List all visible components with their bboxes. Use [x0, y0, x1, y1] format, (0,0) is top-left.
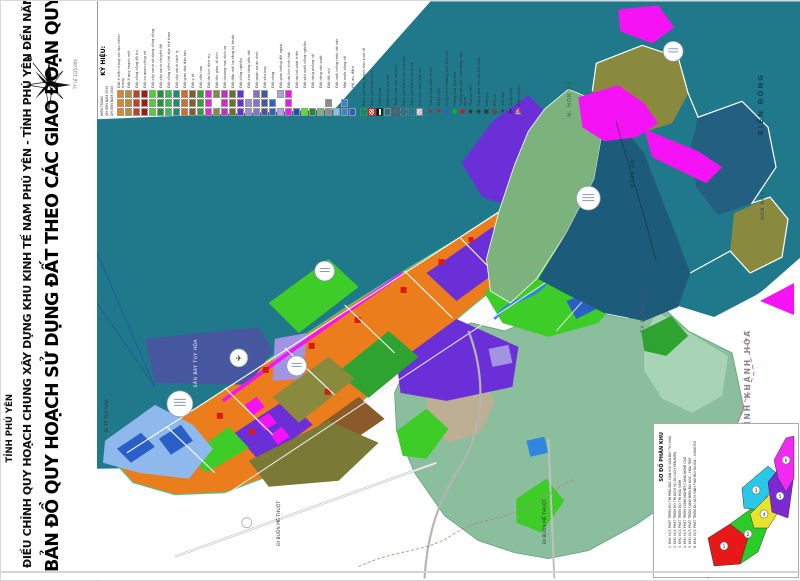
legend-line-item: Ranh giới quy hoạch khu kinh tế — [360, 42, 367, 116]
title-sidebar: B TỶ LỆ 1/25.000 TỈNH PHÚ YÊN ĐIỀU CHỈNH… — [1, 1, 98, 580]
legend-symbol-item: Công trình thương mại dịch vụ● — [443, 42, 450, 116]
svg-text:4: 4 — [763, 512, 766, 518]
svg-text:6: 6 — [785, 458, 788, 464]
legend-item: Đất cơ quan công sở — [141, 24, 148, 116]
phase-label: QH ĐẾN NĂM 2040 — [110, 76, 114, 116]
inset-zone-map: 1 2 3 4 5 6 — [700, 426, 796, 574]
svg-text:1: 1 — [723, 544, 726, 550]
legend-item: Đất cây xanh cách ly — [173, 24, 180, 116]
map-sheet: B TỶ LỆ 1/25.000 TỈNH PHÚ YÊN ĐIỀU CHỈNH… — [0, 0, 800, 581]
inset-zone-line: 4. KHU VỰC PHÁT TRIỂN CÔNG NGHIỆP CÔNG N… — [683, 430, 687, 548]
legend-item: Đất y tế — [189, 24, 196, 116]
hon-ba-label: N. HÒN BÀ — [567, 81, 573, 117]
airport-symbol-icon: ✈ — [235, 354, 242, 363]
inset-title: SƠ ĐỒ PHÂN KHU — [659, 432, 665, 482]
legend-title: KÝ HIỆU: — [100, 46, 107, 76]
airport-label: SÂN BAY TUY HÒA — [194, 339, 199, 387]
legend-line-item: Khu vực khai thác cát — [416, 42, 423, 116]
legend-item: Đất du lịch dịch vụ — [205, 24, 212, 116]
legend-point-symbols: Trung tâm hành chính★Bệnh viện✚Công trìn… — [427, 42, 522, 116]
page-title: BẢN ĐỒ QUY HOẠCH SỬ DỤNG ĐẤT THEO CÁC GI… — [43, 0, 63, 572]
legend-item: Đất sản xuất nông nghiệp — [301, 24, 308, 116]
phase-label: HIỆN TRẠNG — [100, 76, 104, 116]
legend-phase-labels: HIỆN TRẠNG QH ĐẾN NĂM 2030 QH ĐẾN NĂM 20… — [100, 76, 114, 116]
legend-item: Đất quân sự an ninh — [253, 24, 260, 116]
khanh-hoa-label: TỈNH KHÁNH HÒA — [743, 329, 752, 431]
sheet-bottom-edge — [1, 571, 800, 573]
legend-item: Đất hỗn hợp — [197, 24, 204, 116]
vung-ro-label: VŨNG RÔ — [631, 159, 636, 187]
scale-note: TỶ LỆ 1/25.000 — [73, 59, 78, 89]
legend-item: Đất rừng phòng hộ — [309, 24, 316, 116]
legend-line-item: Ranh giới hành chính huyện — [400, 42, 407, 116]
legend-item: Đất ở hiện trạng cải tạo chỉnh trang — [117, 24, 124, 116]
legend-symbol-item: Trường đại học, cao đẳng, dạy nghề● — [459, 42, 466, 116]
legend-symbol-item: Cảng biển⚓ — [507, 42, 514, 116]
dong-hoa-label: TX ĐÔNG HÒA — [641, 289, 646, 333]
legend-line-item: Tuyến cáp treo dự kiến — [392, 42, 399, 116]
legend-item: Đất công viên thể dục thể thao — [165, 24, 172, 116]
svg-text:5: 5 — [779, 494, 782, 500]
legend-item: Đất du lịch sinh thái — [285, 24, 292, 116]
map-subtitle: ĐIỀU CHỈNH QUY HOẠCH CHUNG XÂY DỰNG KHU … — [21, 0, 34, 568]
legend-item: Đất cảng — [269, 24, 276, 116]
legend-item: Đất giao thông đối ngoại — [277, 24, 284, 116]
inset-zone-line: 3. KHU VỰC PHÁT TRIỂN ĐÔ THỊ HÒA VINH — [678, 430, 682, 548]
legend-line-item: Ranh giới phân khu — [368, 42, 375, 116]
legend-line-item: Đường bộ cao tốc — [384, 42, 391, 116]
road-bmt-label-1: ĐI BUÔN MÊ THUỘT — [277, 501, 282, 546]
legend-line-symbols: Ranh giới quy hoạch khu kinh tếRanh giới… — [360, 42, 423, 116]
inset-zone-diagram: SƠ ĐỒ PHÂN KHU 1. KHU VỰC PHÁT TRIỂN ĐÔ … — [653, 423, 799, 578]
legend-item: Đất nuôi trồng thủy hải sản — [333, 24, 340, 116]
svg-text:3: 3 — [755, 488, 758, 494]
legend-symbol-item: Bệnh viện✚ — [435, 42, 442, 116]
legend-item: Đất cây xanh sử dụng công cộng — [149, 24, 156, 116]
legend-panel: KÝ HIỆU: HIỆN TRẠNG QH ĐẾN NĂM 2030 QH Đ… — [100, 4, 474, 116]
legend-symbol-item: Trung tâm văn hóa● — [451, 42, 458, 116]
legend-item: Đất đầu mối hạ tầng kỹ thuật — [229, 24, 236, 116]
legend-item: Đất công nghiệp — [237, 24, 244, 116]
legend-symbol-item: Sân bay✈ — [499, 42, 506, 116]
legend-item: Mặt nước sông hồ — [341, 24, 348, 116]
legend-item: Đất giáo dục đào tạo — [181, 24, 188, 116]
hon-nua-label: HÒN NƯA — [761, 191, 766, 220]
legend-item: Đất rừng sản xuất — [317, 24, 324, 116]
legend-line-item: Ranh giới hành chính xã — [408, 42, 415, 116]
legend-item: Đất dự trữ phát triển — [293, 24, 300, 116]
legend-item: Đất công cộng đô thị — [133, 24, 140, 116]
road-bmt-label-2: ĐI BUÔN MÊ THUỘT — [543, 499, 548, 544]
road-tuy-hoa-label: ĐI TP TUY HÒA — [105, 399, 110, 432]
legend-symbol-item: Trung tâm hành chính★ — [427, 42, 434, 116]
legend-item: Đất ở quy hoạch mới — [125, 24, 132, 116]
legend-symbol-item: Trường THPT◆ — [467, 42, 474, 116]
legend-symbol-item: Bến thuyền⛵ — [515, 42, 522, 116]
legend-landuse-swatches: Đất ở hiện trạng cải tạo chỉnh trangĐất … — [117, 24, 356, 116]
legend-item: Hồ, ao, đầm — [349, 24, 356, 116]
province-title: TỈNH PHÚ YÊN — [5, 394, 15, 462]
legend-line-item: Đường sắt — [376, 42, 383, 116]
inset-zone-line: 5. KHU VỰC PHÁT TRIỂN CẢNG BIỂN BÃI GỐC … — [688, 430, 692, 548]
inset-zone-line: 2. KHU VỰC PHÁT TRIỂN ĐÔ THỊ DỊCH VỤ DU … — [673, 430, 677, 548]
legend-symbol-item: Bến xe⬤ — [491, 42, 498, 116]
legend-item: Đất tôn giáo, di tích — [213, 24, 220, 116]
legend-item: Đất cây xanh chuyên đề — [157, 24, 164, 116]
legend-item: Đất đồi núi — [325, 24, 332, 116]
legend-item: Đất sân bay — [261, 24, 268, 116]
legend-item: Đất thương mại dịch vụ — [221, 24, 228, 116]
sea-label: BIỂN ĐÔNG — [757, 73, 765, 135]
inset-zone-line: 6. KHU VỰC PHÁT TRIỂN DU LỊCH SINH THÁI … — [693, 430, 697, 548]
inset-zone-list: 1. KHU VỰC PHÁT TRIỂN ĐÔ THỊ PHÍA BẮC GẮ… — [668, 430, 697, 550]
legend-header: KÝ HIỆU: HIỆN TRẠNG QH ĐẾN NĂM 2030 QH Đ… — [100, 46, 114, 116]
inset-zone-line: 1. KHU VỰC PHÁT TRIỂN ĐÔ THỊ PHÍA BẮC GẮ… — [668, 430, 672, 548]
legend-symbol-item: Nhà ga▣ — [483, 42, 490, 116]
phase-label: QH ĐẾN NĂM 2030 — [105, 76, 109, 116]
legend-symbol-item: Trung tâm thể dục thể thao◉ — [475, 42, 482, 116]
svg-text:2: 2 — [747, 532, 750, 538]
legend-item: Đất kho tàng bến bãi — [245, 24, 252, 116]
